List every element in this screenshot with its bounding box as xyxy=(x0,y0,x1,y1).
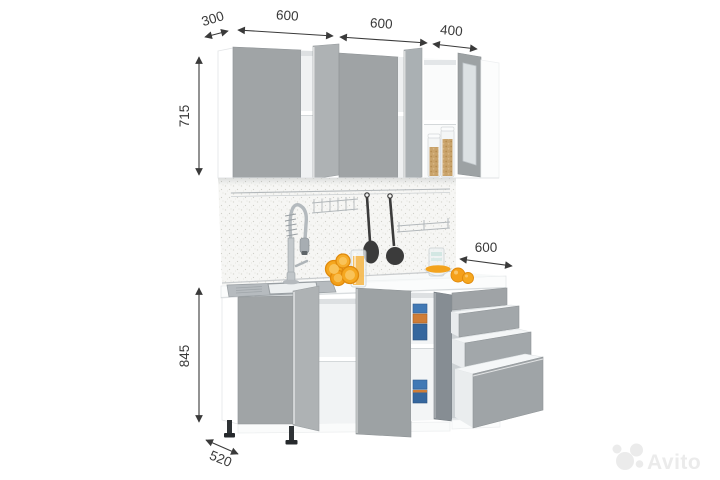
dim-line-400 xyxy=(433,44,477,49)
wall-cabinet-side-panel xyxy=(218,48,233,178)
dim-label-600-1: 600 xyxy=(276,7,300,24)
avito-watermark: Avito xyxy=(613,444,702,475)
wall-cabinet-right-panel xyxy=(481,60,499,178)
wall-interior-1 xyxy=(301,50,313,178)
dim-label-600-right: 600 xyxy=(475,240,498,255)
dim-line-300 xyxy=(205,31,228,37)
dim-line-600-1 xyxy=(238,30,333,36)
base-door-open-sink xyxy=(293,286,319,431)
base-door-closed xyxy=(238,296,293,424)
avito-logo-icon xyxy=(613,444,644,471)
wall-interior-2 xyxy=(398,57,404,178)
grain-jar-1 xyxy=(428,134,440,177)
base-cabinets xyxy=(222,286,452,437)
drawer-unit xyxy=(451,288,543,429)
avito-watermark-text: Avito xyxy=(647,451,701,474)
food-containers-top xyxy=(413,304,427,340)
dim-line-600-2 xyxy=(340,37,427,43)
wall-interior-3 xyxy=(424,58,456,178)
dim-label-600-2: 600 xyxy=(370,15,394,32)
wall-glass-door xyxy=(458,53,481,177)
dim-line-600-right xyxy=(460,259,512,266)
wall-door-open-1 xyxy=(313,44,339,179)
wall-door-closed-1 xyxy=(233,47,301,178)
wall-door-closed-2 xyxy=(339,53,398,178)
kitchen-product-image: 300 600 600 400 715 845 600 520 Avito xyxy=(0,0,720,480)
dim-label-715: 715 xyxy=(177,105,192,128)
wall-cabinets xyxy=(218,44,499,179)
base-side-panel xyxy=(222,297,238,424)
food-containers-bottom xyxy=(413,380,427,403)
frosted-glass-panel xyxy=(463,63,476,165)
dim-label-300: 300 xyxy=(200,8,226,29)
dim-label-845: 845 xyxy=(177,345,192,368)
grain-jar-2 xyxy=(441,127,454,177)
base-door-open-middle xyxy=(356,288,411,437)
base-door-open-edge xyxy=(434,292,452,421)
wall-door-open-2 xyxy=(404,48,422,179)
kitchen-render-canvas: 300 600 600 400 715 845 600 520 Avito xyxy=(0,0,720,480)
dim-label-400: 400 xyxy=(440,22,464,39)
base-interior-containers xyxy=(411,292,434,421)
base-interior-sink xyxy=(319,298,356,424)
